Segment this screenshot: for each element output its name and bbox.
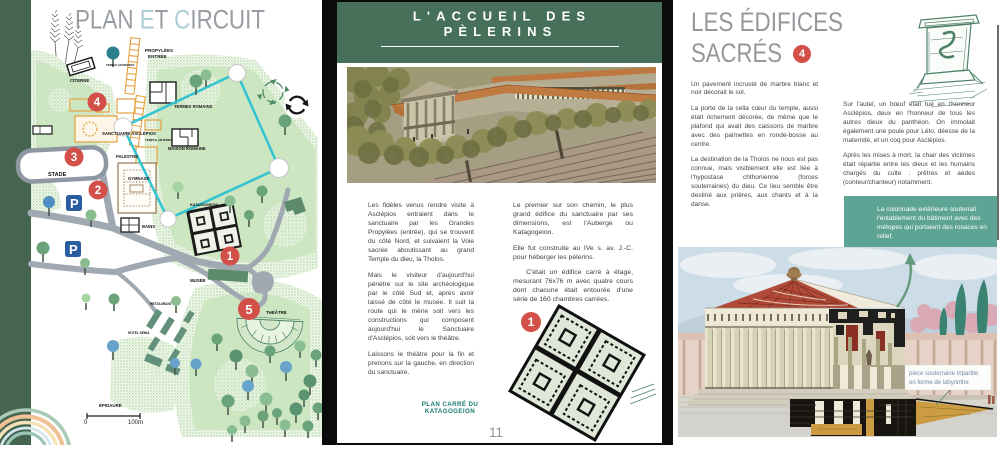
svg-text:BAINS: BAINS	[142, 224, 155, 229]
svg-text:MUSÉE: MUSÉE	[190, 278, 206, 283]
svg-text:RESTAURANT: RESTAURANT	[150, 302, 172, 306]
svg-text:CITERNE: CITERNE	[70, 78, 89, 83]
svg-text:HOTEL XENIA: HOTEL XENIA	[128, 331, 150, 335]
svg-text:en forme de labyrinthe: en forme de labyrinthe	[909, 380, 969, 386]
svg-text:ENTRÉE: ENTRÉE	[148, 52, 167, 59]
svg-text:2: 2	[95, 185, 101, 197]
svg-text:pièce souterraine tripartite: pièce souterraine tripartite	[909, 371, 979, 377]
svg-text:SANCTUAIRE ASCLÉPIOS: SANCTUAIRE ASCLÉPIOS	[102, 131, 156, 136]
svg-text:PLAN ET CIRCUIT: PLAN ET CIRCUIT	[75, 5, 265, 35]
svg-text:P: P	[70, 196, 79, 211]
svg-text:0: 0	[84, 420, 88, 426]
svg-text:ÉPIDAURE: ÉPIDAURE	[99, 403, 122, 408]
svg-text:TEMPLE ARTEMIS: TEMPLE ARTEMIS	[145, 138, 171, 142]
svg-text:PALESTRE: PALESTRE	[116, 154, 138, 159]
svg-text:GYMNASE: GYMNASE	[128, 176, 149, 181]
svg-text:STADE: STADE	[48, 172, 67, 178]
svg-text:4: 4	[94, 97, 101, 109]
svg-text:LES ÉDIFICES: LES ÉDIFICES	[691, 7, 843, 37]
svg-text:MAISON ROMAINE: MAISON ROMAINE	[168, 146, 206, 151]
svg-text:3: 3	[71, 152, 77, 164]
svg-text:L'ACCUEIL DES: L'ACCUEIL DES	[413, 9, 591, 24]
svg-text:TERMES ROMAINS: TERMES ROMAINS	[174, 104, 213, 109]
svg-text:1: 1	[227, 251, 234, 263]
svg-text:PROPYLÉES: PROPYLÉES	[145, 46, 173, 53]
svg-text:P: P	[69, 242, 78, 257]
svg-text:THÉÂTRE: THÉÂTRE	[266, 310, 287, 315]
svg-text:100m: 100m	[128, 420, 143, 426]
svg-text:KATAGOGEION: KATAGOGEION	[190, 203, 218, 207]
svg-text:TEMPLE APHRODITE: TEMPLE APHRODITE	[106, 63, 135, 67]
svg-text:5: 5	[245, 302, 252, 317]
svg-text:SACRÉS: SACRÉS	[691, 38, 782, 68]
svg-text:PÈLERINS: PÈLERINS	[444, 24, 558, 39]
